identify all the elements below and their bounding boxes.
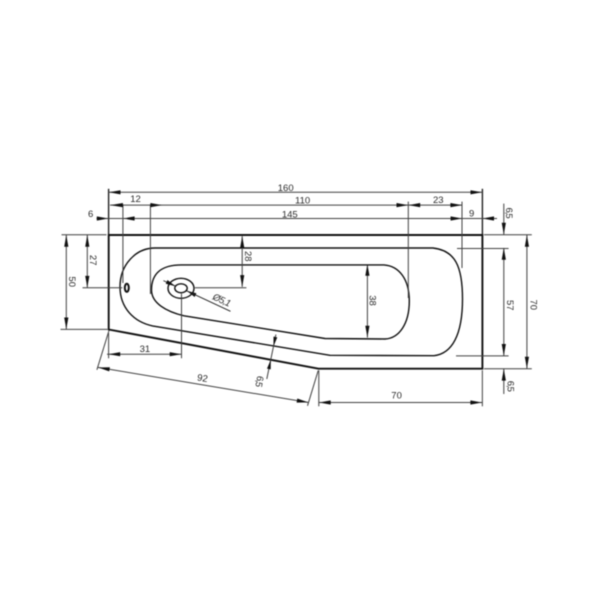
svg-text:70: 70 [391, 390, 402, 401]
svg-text:145: 145 [282, 209, 298, 220]
svg-text:23: 23 [433, 195, 444, 206]
svg-text:92: 92 [196, 373, 208, 386]
svg-text:38: 38 [367, 295, 378, 306]
svg-text:6,5: 6,5 [503, 207, 514, 218]
svg-text:12: 12 [130, 194, 141, 205]
svg-text:27: 27 [87, 255, 98, 266]
svg-text:31: 31 [140, 344, 151, 355]
svg-text:6: 6 [88, 209, 93, 220]
svg-text:28: 28 [242, 251, 253, 262]
svg-text:160: 160 [278, 183, 294, 194]
svg-text:9: 9 [469, 209, 474, 220]
svg-text:110: 110 [295, 196, 310, 207]
svg-text:70: 70 [528, 300, 539, 311]
svg-text:50: 50 [66, 276, 77, 287]
svg-text:6,5: 6,5 [504, 381, 515, 392]
svg-text:57: 57 [504, 300, 515, 311]
